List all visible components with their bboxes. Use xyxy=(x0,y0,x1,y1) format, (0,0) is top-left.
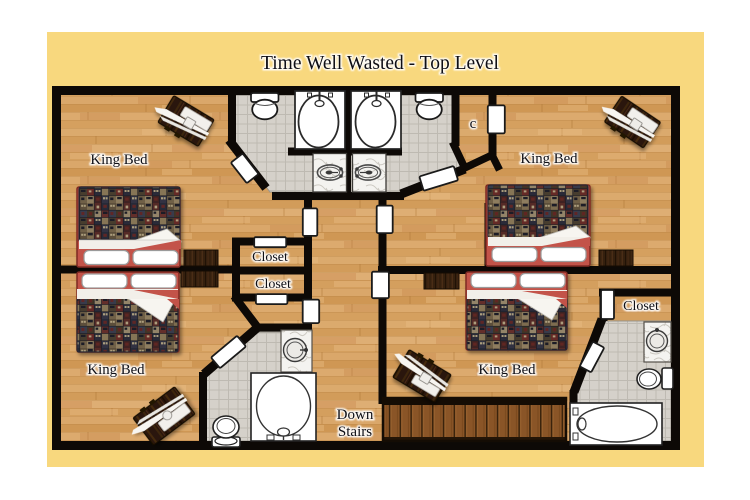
svg-text:King Bed: King Bed xyxy=(520,151,578,167)
svg-text:Closet: Closet xyxy=(623,299,659,314)
svg-text:Time Well Wasted - Top Level: Time Well Wasted - Top Level xyxy=(261,53,500,74)
svg-text:Stairs: Stairs xyxy=(338,424,372,440)
svg-text:Closet: Closet xyxy=(252,250,288,265)
svg-text:King Bed: King Bed xyxy=(478,362,536,378)
svg-text:c: c xyxy=(470,116,477,132)
svg-text:Down: Down xyxy=(337,407,374,423)
svg-text:King Bed: King Bed xyxy=(90,152,148,168)
svg-text:Closet: Closet xyxy=(255,277,291,292)
svg-text:King Bed: King Bed xyxy=(87,362,145,378)
